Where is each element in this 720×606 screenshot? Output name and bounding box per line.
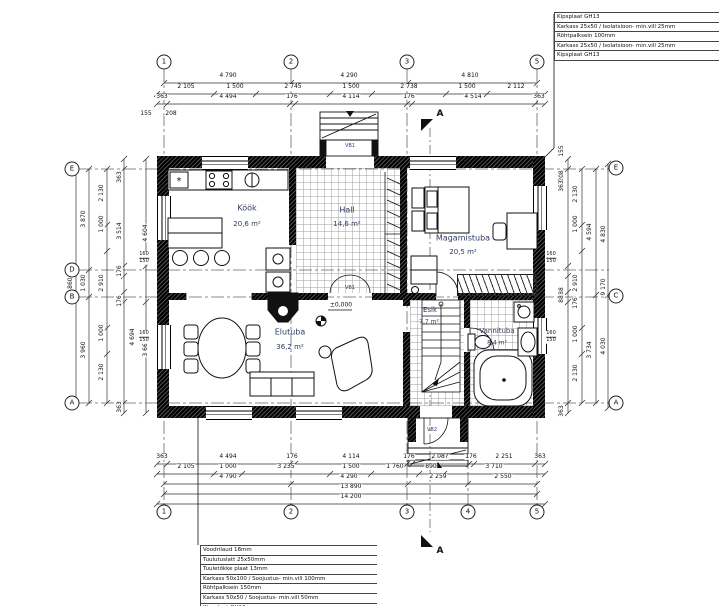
dim-label: 2 910 (99, 273, 105, 292)
dim-label: 208 (164, 111, 177, 117)
wall-structure-legend-bottom: Voodrilaud 18mmTuulutuslatt 25x50mmTuule… (200, 545, 377, 606)
grid-bubble-bottom-4: 4 (461, 505, 476, 520)
dim-label: 2 251 (494, 454, 513, 460)
dim-label: 1 760 (385, 464, 404, 470)
legend-row: Röhtpalksein 150mm (201, 584, 377, 594)
legend-row: Karkass 50x100 / Soojustus- min.vill 100… (201, 575, 377, 585)
dim-label: 14 200 (340, 494, 363, 500)
dim-label: 4 830 (601, 224, 607, 243)
dim-label: 176 (117, 294, 123, 307)
dim-label: 363 (155, 94, 168, 100)
window-tag-right-1: 160150 (545, 252, 557, 265)
room-area-esik: 7,7 m² (419, 319, 439, 326)
room-area-magamistuba: 20,5 m² (449, 248, 476, 256)
legend-row: Tuuletõkke plaat 13mm (201, 565, 377, 575)
dim-label: 4 790 (218, 474, 237, 480)
room-label-elutuba: Elutuba (275, 328, 306, 337)
grid-bubble-bottom-3: 3 (400, 505, 415, 520)
room-area-vannituba: 8,4 m² (487, 340, 507, 347)
dim-label: 3 960 (81, 340, 87, 359)
dim-label: 2 259 (428, 474, 447, 480)
legend-row: Karkass 25x50 / Isolatsioon- min.vill 25… (555, 42, 719, 52)
dim-label: 13 890 (340, 484, 363, 490)
dim-label: 2 550 (493, 474, 512, 480)
dim-label: 2 087 (430, 454, 449, 460)
grid-bubble-top-5: 5 (530, 55, 545, 70)
dim-label: 176 (402, 94, 415, 100)
grid-bubble-top-1: 1 (157, 55, 172, 70)
dim-label: 4 604 (143, 223, 149, 242)
section-label-bottom: A (437, 546, 444, 556)
legend-row: Karkass 25x50 / Isolatsioon- min.vill 25… (555, 23, 719, 33)
dim-label: 363 (559, 404, 565, 417)
dim-label: 3 514 (117, 221, 123, 240)
dim-label: 363 (532, 94, 545, 100)
grid-bubble-top-3: 3 (400, 55, 415, 70)
section-label-top: A (437, 109, 444, 119)
dim-label: 1 030 (81, 273, 87, 292)
grid-bubble-right-C: C (609, 289, 624, 304)
room-label-kook: Köök (237, 204, 256, 213)
legend-row: Röhtpalksein 100mm (555, 32, 719, 42)
dim-label: 4 030 (601, 336, 607, 355)
room-area-hall: 14,6 m² (333, 220, 360, 228)
dim-label: 363 (533, 454, 546, 460)
room-area-elutuba: 36,2 m² (276, 343, 303, 351)
dim-label: 2 745 (283, 84, 302, 90)
dim-label: 176 (117, 264, 123, 277)
dim-label: 4 290 (339, 73, 358, 79)
dim-label: 9 170 (601, 277, 607, 296)
dim-label: 1 500 (457, 84, 476, 90)
dim-label: 2 130 (99, 183, 105, 202)
dim-label: 2 105 (176, 84, 195, 90)
door-tag-back: VB2 (427, 427, 437, 433)
dim-label: 363 (117, 170, 123, 183)
grid-bubble-top-2: 2 (284, 55, 299, 70)
dim-label: 4 694 (130, 327, 136, 346)
dim-label: 3 710 (484, 464, 503, 470)
dim-label: 2 112 (506, 84, 525, 90)
legend-row: Kipsplaat GH13 (555, 51, 719, 61)
dim-label: 176 (464, 454, 477, 460)
grid-bubble-right-A: A (609, 396, 624, 411)
grid-bubble-bottom-5: 5 (530, 505, 545, 520)
dim-label: 176 (285, 454, 298, 460)
window-tag-left-2: 160150 (138, 331, 150, 344)
dim-label: 3 734 (587, 340, 593, 359)
dim-label: 155 (139, 111, 152, 117)
dim-label: 1 500 (341, 464, 360, 470)
dim-label: 176 (285, 94, 298, 100)
dim-label: 363 (155, 454, 168, 460)
dim-label: 1 000 (99, 214, 105, 233)
dim-label: 176 (402, 454, 415, 460)
dim-label: 88 (559, 294, 565, 304)
dim-label: 2 130 (573, 184, 579, 203)
grid-bubble-bottom-2: 2 (284, 505, 299, 520)
dim-label: 2 130 (99, 362, 105, 381)
legend-row: Karkass 50x50 / Soojustus- min.vill 50mm (201, 594, 377, 604)
dim-label: 1 500 (225, 84, 244, 90)
dim-label: 4 810 (460, 73, 479, 79)
legend-row: Tuulutuslatt 25x50mm (201, 556, 377, 566)
dim-label: 2 130 (573, 363, 579, 382)
grid-bubble-bottom-1: 1 (157, 505, 172, 520)
dim-label: 3 870 (81, 209, 87, 228)
door-tag-hall: VB1 (345, 285, 355, 291)
grid-bubble-left-E: E (65, 162, 80, 177)
labels-layer: 1 2 3 5 1 2 3 4 5 E D B A E C A Köök 20,… (0, 0, 720, 606)
dim-label: 4 494 (218, 454, 237, 460)
wall-structure-legend-top: Kipsplaat GH13Karkass 25x50 / Isolatsioo… (554, 12, 719, 61)
dim-label: 2 910 (573, 273, 579, 292)
floor-plan-drawing: * (0, 0, 720, 606)
grid-bubble-right-E: E (609, 161, 624, 176)
dim-label: 4 114 (341, 454, 360, 460)
dim-label: 4 514 (463, 94, 482, 100)
dim-label: 1 000 (99, 323, 105, 342)
dim-label: 2 105 (176, 464, 195, 470)
dim-label: 890 (424, 464, 437, 470)
grid-bubble-left-D: D (65, 263, 80, 278)
dim-label: 1 000 (573, 324, 579, 343)
dim-label: 3 235 (276, 464, 295, 470)
room-label-magamistuba: Magamistuba (436, 234, 490, 243)
room-label-vannituba: Vannituba (479, 327, 514, 335)
dim-label: 4 114 (341, 94, 360, 100)
level-label: ±0,000 (330, 302, 352, 309)
window-tag-right-2: 160150 (545, 331, 557, 344)
door-tag-entrance: VB1 (345, 143, 355, 149)
dim-label: 4 594 (587, 222, 593, 241)
dim-label: 1 000 (573, 214, 579, 233)
room-label-hall: Hall (339, 206, 354, 215)
dim-label: 2 738 (399, 84, 418, 90)
dim-label: 363 (559, 179, 565, 192)
dim-label: 4 790 (218, 73, 237, 79)
room-area-kook: 20,6 m² (233, 220, 260, 228)
room-label-esik: Esik (423, 306, 437, 314)
dim-label: 363 (117, 400, 123, 413)
grid-bubble-left-B: B (65, 290, 80, 305)
legend-row: Voodrilaud 18mm (201, 546, 377, 556)
dim-label: 176 (573, 296, 579, 309)
dim-label: 1 500 (341, 84, 360, 90)
dim-label: 1 000 (218, 464, 237, 470)
dim-label: 4 290 (339, 474, 358, 480)
dim-label: 4 494 (218, 94, 237, 100)
window-tag-left-1: 160150 (138, 252, 150, 265)
grid-bubble-left-A: A (65, 396, 80, 411)
dim-label: 155 (559, 144, 565, 157)
legend-row: Kipsplaat GH13 (555, 13, 719, 23)
